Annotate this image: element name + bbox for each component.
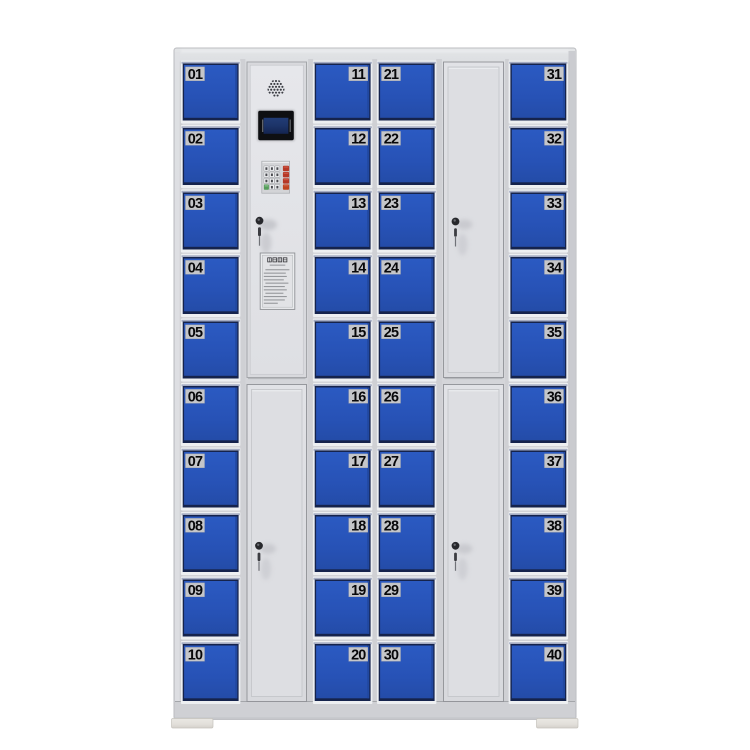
svg-text:30: 30 <box>384 648 399 664</box>
svg-text:08: 08 <box>188 519 203 535</box>
svg-text:10: 10 <box>188 648 203 664</box>
svg-text:24: 24 <box>384 261 399 277</box>
svg-text:14: 14 <box>351 261 366 277</box>
svg-text:17: 17 <box>351 454 366 470</box>
svg-text:36: 36 <box>547 390 562 406</box>
svg-text:02: 02 <box>188 132 203 148</box>
svg-text:01: 01 <box>188 67 203 83</box>
svg-text:29: 29 <box>384 583 399 599</box>
svg-text:26: 26 <box>384 390 399 406</box>
svg-text:23: 23 <box>384 196 399 212</box>
svg-text:34: 34 <box>547 261 562 277</box>
svg-text:22: 22 <box>384 132 399 148</box>
svg-text:12: 12 <box>351 132 366 148</box>
svg-text:25: 25 <box>384 325 399 341</box>
svg-text:15: 15 <box>351 325 366 341</box>
svg-text:09: 09 <box>188 583 203 599</box>
svg-text:33: 33 <box>547 196 562 212</box>
svg-text:03: 03 <box>188 196 203 212</box>
svg-text:20: 20 <box>351 648 366 664</box>
svg-text:04: 04 <box>188 261 203 277</box>
svg-text:06: 06 <box>188 390 203 406</box>
svg-text:11: 11 <box>351 67 365 83</box>
svg-text:21: 21 <box>384 67 399 83</box>
svg-text:31: 31 <box>547 67 562 83</box>
svg-text:16: 16 <box>351 390 366 406</box>
svg-text:18: 18 <box>351 519 366 535</box>
svg-text:28: 28 <box>384 519 399 535</box>
svg-text:39: 39 <box>547 583 562 599</box>
svg-text:38: 38 <box>547 519 562 535</box>
svg-text:05: 05 <box>188 325 203 341</box>
svg-text:19: 19 <box>351 583 366 599</box>
svg-text:35: 35 <box>547 325 562 341</box>
svg-text:32: 32 <box>547 132 562 148</box>
svg-text:40: 40 <box>547 648 562 664</box>
svg-text:13: 13 <box>351 196 366 212</box>
svg-text:27: 27 <box>384 454 399 470</box>
svg-text:37: 37 <box>547 454 562 470</box>
svg-text:07: 07 <box>188 454 203 470</box>
